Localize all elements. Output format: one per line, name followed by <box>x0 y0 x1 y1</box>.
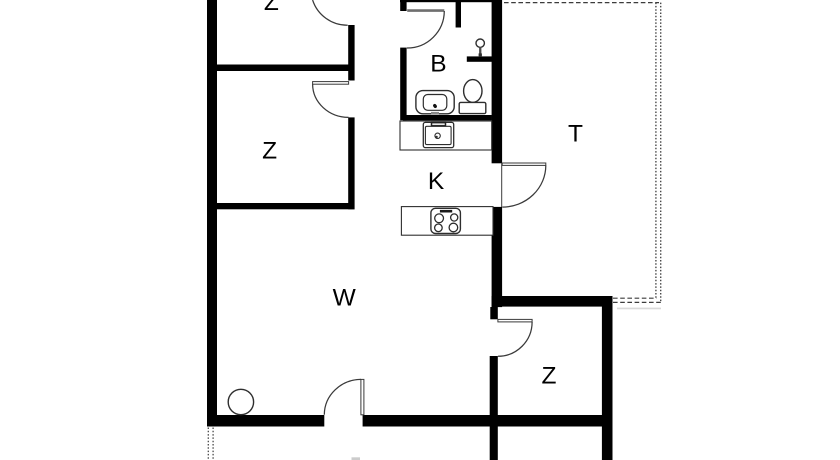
svg-text:W: W <box>333 285 357 312</box>
svg-text:T: T <box>568 121 583 148</box>
svg-text:K: K <box>428 168 445 195</box>
svg-text:Z: Z <box>264 0 279 16</box>
svg-text:B: B <box>430 50 446 77</box>
svg-text:Z: Z <box>542 363 557 390</box>
svg-text:Z: Z <box>262 138 277 165</box>
